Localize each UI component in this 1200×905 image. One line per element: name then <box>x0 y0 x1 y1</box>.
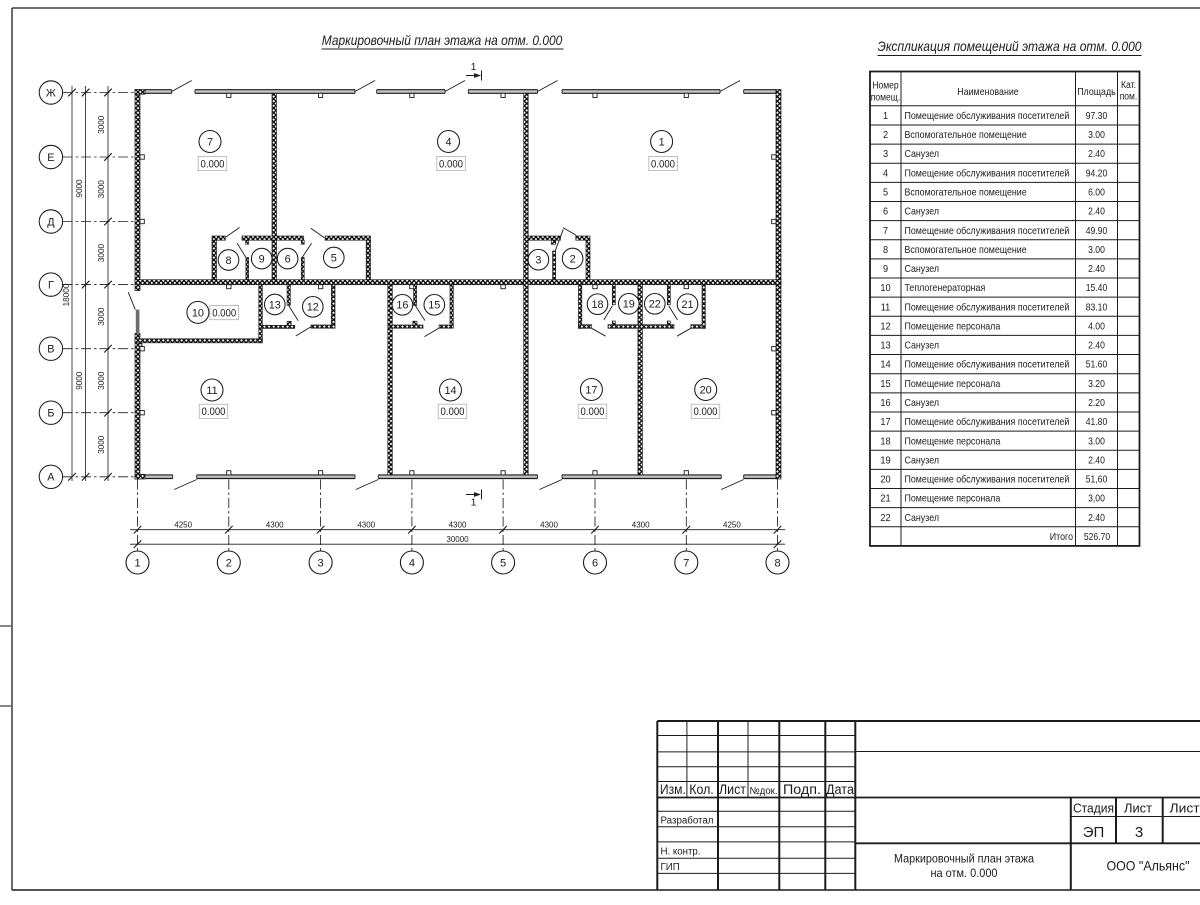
svg-text:12: 12 <box>880 321 891 332</box>
svg-text:Теплогенераторная: Теплогенераторная <box>905 283 986 294</box>
svg-text:19: 19 <box>623 299 635 311</box>
svg-text:Санузел: Санузел <box>905 455 940 466</box>
svg-text:4300: 4300 <box>632 521 650 530</box>
svg-text:97.30: 97.30 <box>1086 111 1108 122</box>
svg-text:3.20: 3.20 <box>1088 379 1105 390</box>
svg-text:Помещение персонала: Помещение персонала <box>905 494 1001 505</box>
svg-text:3: 3 <box>535 255 541 267</box>
svg-text:Кат.: Кат. <box>1121 80 1136 91</box>
svg-text:помещ.: помещ. <box>871 93 900 104</box>
svg-text:51,60: 51,60 <box>1086 475 1108 486</box>
svg-text:6.00: 6.00 <box>1088 188 1105 199</box>
svg-text:Подп.: Подп. <box>783 782 821 797</box>
svg-text:ГИП: ГИП <box>661 861 680 873</box>
svg-text:2: 2 <box>226 557 232 569</box>
svg-text:4300: 4300 <box>266 521 284 530</box>
svg-text:1: 1 <box>471 62 477 73</box>
svg-text:4300: 4300 <box>357 521 375 530</box>
svg-text:2: 2 <box>883 130 888 141</box>
svg-text:4: 4 <box>409 557 415 569</box>
svg-text:Помещение обслуживания посетит: Помещение обслуживания посетителей <box>905 225 1070 237</box>
svg-text:8: 8 <box>774 557 780 569</box>
svg-text:6: 6 <box>285 253 291 265</box>
svg-text:2.40: 2.40 <box>1088 513 1105 524</box>
svg-text:3,00: 3,00 <box>1088 494 1105 505</box>
svg-text:6: 6 <box>883 207 888 218</box>
svg-text:3: 3 <box>318 557 324 569</box>
svg-text:0.000: 0.000 <box>581 406 605 418</box>
svg-text:0.000: 0.000 <box>212 307 236 319</box>
svg-text:Санузел: Санузел <box>905 207 940 218</box>
svg-text:3000: 3000 <box>97 115 106 134</box>
svg-text:9000: 9000 <box>75 179 84 198</box>
svg-text:Н. контр.: Н. контр. <box>661 847 701 858</box>
svg-text:Стадия: Стадия <box>1073 801 1114 816</box>
svg-text:21: 21 <box>880 494 891 505</box>
svg-text:Помещение обслуживания посетит: Помещение обслуживания посетителей <box>905 110 1070 122</box>
svg-text:12: 12 <box>307 302 319 314</box>
svg-text:Помещение персонала: Помещение персонала <box>905 379 1001 390</box>
svg-text:Разработал: Разработал <box>661 815 714 827</box>
svg-text:15.40: 15.40 <box>1086 283 1108 294</box>
svg-text:Б: Б <box>47 408 54 420</box>
svg-text:17: 17 <box>585 384 597 396</box>
svg-text:0.000: 0.000 <box>694 406 718 418</box>
svg-text:11: 11 <box>881 302 891 313</box>
svg-text:Вспомогательное помещение: Вспомогательное помещение <box>905 130 1027 141</box>
svg-text:18: 18 <box>591 299 603 311</box>
svg-text:14: 14 <box>880 360 891 371</box>
svg-text:Санузел: Санузел <box>905 149 940 160</box>
svg-text:22: 22 <box>649 299 661 311</box>
svg-text:21: 21 <box>681 299 693 311</box>
svg-text:Санузел: Санузел <box>905 398 940 409</box>
svg-text:Помещение персонала: Помещение персонала <box>905 321 1001 332</box>
svg-text:83.10: 83.10 <box>1086 302 1108 313</box>
svg-text:4250: 4250 <box>174 521 192 530</box>
svg-text:13: 13 <box>880 341 891 352</box>
svg-text:1: 1 <box>659 136 665 148</box>
svg-text:51.60: 51.60 <box>1086 360 1108 371</box>
svg-text:В: В <box>47 344 54 356</box>
svg-text:5: 5 <box>883 188 888 199</box>
svg-text:7: 7 <box>683 557 689 569</box>
svg-text:20: 20 <box>880 475 891 486</box>
svg-text:15: 15 <box>880 379 891 390</box>
svg-text:16: 16 <box>396 300 408 312</box>
svg-text:Помещение обслуживания посетит: Помещение обслуживания посетителей <box>905 416 1070 428</box>
svg-text:№док.: №док. <box>750 786 778 797</box>
svg-text:3: 3 <box>1135 824 1143 841</box>
svg-text:Помещение обслуживания посетит: Помещение обслуживания посетителей <box>905 359 1070 371</box>
svg-text:10: 10 <box>880 283 891 294</box>
svg-text:Лист: Лист <box>1124 801 1152 816</box>
svg-text:2.40: 2.40 <box>1088 149 1105 160</box>
svg-text:Маркировочный план этажа: Маркировочный план этажа <box>894 852 1034 866</box>
svg-text:3000: 3000 <box>97 243 106 262</box>
svg-text:8: 8 <box>225 255 231 267</box>
svg-text:4300: 4300 <box>449 521 467 530</box>
svg-text:10: 10 <box>192 307 204 319</box>
svg-text:1: 1 <box>471 498 477 509</box>
svg-text:4: 4 <box>445 136 451 148</box>
svg-text:3000: 3000 <box>97 435 106 454</box>
svg-text:4: 4 <box>883 168 888 179</box>
svg-text:1: 1 <box>883 111 888 122</box>
svg-text:9000: 9000 <box>75 371 84 390</box>
svg-text:Санузел: Санузел <box>905 264 940 275</box>
svg-text:4300: 4300 <box>540 521 558 530</box>
svg-text:22: 22 <box>880 513 891 524</box>
svg-text:7: 7 <box>883 226 888 237</box>
svg-text:0.000: 0.000 <box>202 406 226 418</box>
svg-text:0.000: 0.000 <box>439 158 463 170</box>
svg-text:20: 20 <box>700 384 712 396</box>
svg-text:3000: 3000 <box>97 307 106 326</box>
svg-text:ЭП: ЭП <box>1083 824 1105 841</box>
svg-text:6: 6 <box>592 557 598 569</box>
svg-text:Кол.: Кол. <box>689 782 714 797</box>
svg-text:Санузел: Санузел <box>905 341 940 352</box>
svg-text:3000: 3000 <box>97 180 106 199</box>
svg-text:Помещение обслуживания посетит: Помещение обслуживания посетителей <box>905 301 1070 313</box>
svg-text:19: 19 <box>880 455 891 466</box>
svg-text:Изм.: Изм. <box>660 782 686 797</box>
svg-text:3.00: 3.00 <box>1088 245 1105 256</box>
svg-text:Листов: Листов <box>1170 801 1200 816</box>
svg-text:0.000: 0.000 <box>651 158 675 170</box>
svg-text:2.20: 2.20 <box>1088 398 1105 409</box>
svg-text:на отм. 0.000: на отм. 0.000 <box>931 866 998 880</box>
svg-text:11: 11 <box>206 385 217 397</box>
svg-text:2.40: 2.40 <box>1088 264 1105 275</box>
svg-text:2: 2 <box>570 253 576 265</box>
svg-text:15: 15 <box>428 300 440 312</box>
svg-text:17: 17 <box>880 417 891 428</box>
svg-text:30000: 30000 <box>446 535 469 544</box>
svg-text:9: 9 <box>259 253 265 265</box>
svg-text:Номер: Номер <box>872 81 899 92</box>
svg-text:8: 8 <box>883 245 888 256</box>
svg-text:4250: 4250 <box>723 521 741 530</box>
svg-text:Вспомогательное помещение: Вспомогательное помещение <box>905 188 1027 199</box>
svg-text:Вспомогательное помещение: Вспомогательное помещение <box>905 245 1027 256</box>
svg-text:Площадь: Площадь <box>1077 87 1116 98</box>
svg-text:2.40: 2.40 <box>1088 455 1105 466</box>
svg-text:7: 7 <box>207 136 213 148</box>
svg-text:16: 16 <box>880 398 891 409</box>
svg-text:Ж: Ж <box>46 87 56 99</box>
svg-text:3: 3 <box>883 149 888 160</box>
svg-text:Помещение обслуживания посетит: Помещение обслуживания посетителей <box>905 474 1070 486</box>
svg-text:18000: 18000 <box>62 283 71 306</box>
svg-text:ООО "Альянс": ООО "Альянс" <box>1107 859 1190 874</box>
svg-text:Помещение персонала: Помещение персонала <box>905 436 1001 447</box>
svg-text:пом.: пом. <box>1120 92 1138 103</box>
svg-text:Г: Г <box>48 279 54 291</box>
svg-text:Санузел: Санузел <box>905 513 940 524</box>
svg-text:0.000: 0.000 <box>441 406 465 418</box>
svg-text:3000: 3000 <box>97 371 106 390</box>
svg-text:Экспликация помещений этажа на: Экспликация помещений этажа на отм. 0.00… <box>878 39 1142 54</box>
svg-text:А: А <box>47 472 55 484</box>
svg-text:Е: Е <box>47 152 54 164</box>
svg-text:526.70: 526.70 <box>1084 532 1111 543</box>
svg-text:3.00: 3.00 <box>1088 436 1105 447</box>
svg-text:1: 1 <box>134 557 140 569</box>
svg-text:9: 9 <box>883 264 888 275</box>
svg-text:41.80: 41.80 <box>1086 417 1108 428</box>
svg-text:Дата: Дата <box>826 782 854 797</box>
svg-text:0.000: 0.000 <box>201 158 225 170</box>
svg-text:94.20: 94.20 <box>1086 168 1108 179</box>
svg-text:14: 14 <box>444 385 456 397</box>
svg-text:5: 5 <box>331 252 337 264</box>
svg-text:49.90: 49.90 <box>1086 226 1108 237</box>
svg-text:18: 18 <box>880 436 891 447</box>
svg-text:Итого: Итого <box>1050 532 1073 543</box>
svg-text:Наименование: Наименование <box>957 87 1019 98</box>
svg-text:Маркировочный план этажа на от: Маркировочный план этажа на отм. 0.000 <box>322 33 563 48</box>
svg-text:Д: Д <box>47 216 55 228</box>
svg-text:13: 13 <box>269 299 281 311</box>
svg-text:4.00: 4.00 <box>1088 321 1105 332</box>
svg-text:2.40: 2.40 <box>1088 341 1105 352</box>
svg-text:5: 5 <box>500 557 506 569</box>
svg-text:Помещение обслуживания посетит: Помещение обслуживания посетителей <box>905 167 1070 179</box>
svg-text:Лист: Лист <box>719 782 746 797</box>
svg-text:3.00: 3.00 <box>1088 130 1105 141</box>
svg-text:2.40: 2.40 <box>1088 207 1105 218</box>
